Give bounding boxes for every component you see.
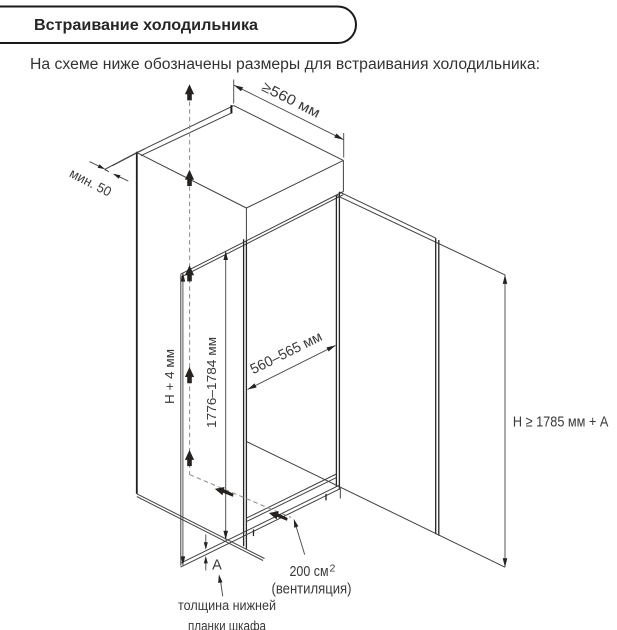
svg-text:На схеме ниже обозначены разме: На схеме ниже обозначены размеры для вст… bbox=[30, 56, 540, 73]
svg-text:(вентиляция): (вентиляция) bbox=[272, 581, 352, 598]
svg-text:2: 2 bbox=[330, 563, 336, 575]
svg-text:H + 4 мм: H + 4 мм bbox=[162, 349, 177, 404]
svg-text:Встраивание холодильника: Встраивание холодильника bbox=[34, 17, 258, 34]
svg-text:H ≥ 1785 мм + A: H ≥ 1785 мм + A bbox=[513, 414, 609, 431]
svg-text:200 см: 200 см bbox=[290, 563, 329, 580]
svg-text:планки шкафа: планки шкафа bbox=[188, 619, 266, 630]
svg-text:A: A bbox=[212, 558, 222, 574]
svg-text:1776–1784 мм: 1776–1784 мм bbox=[204, 337, 219, 428]
svg-text:толщина нижней: толщина нижней bbox=[178, 598, 276, 613]
